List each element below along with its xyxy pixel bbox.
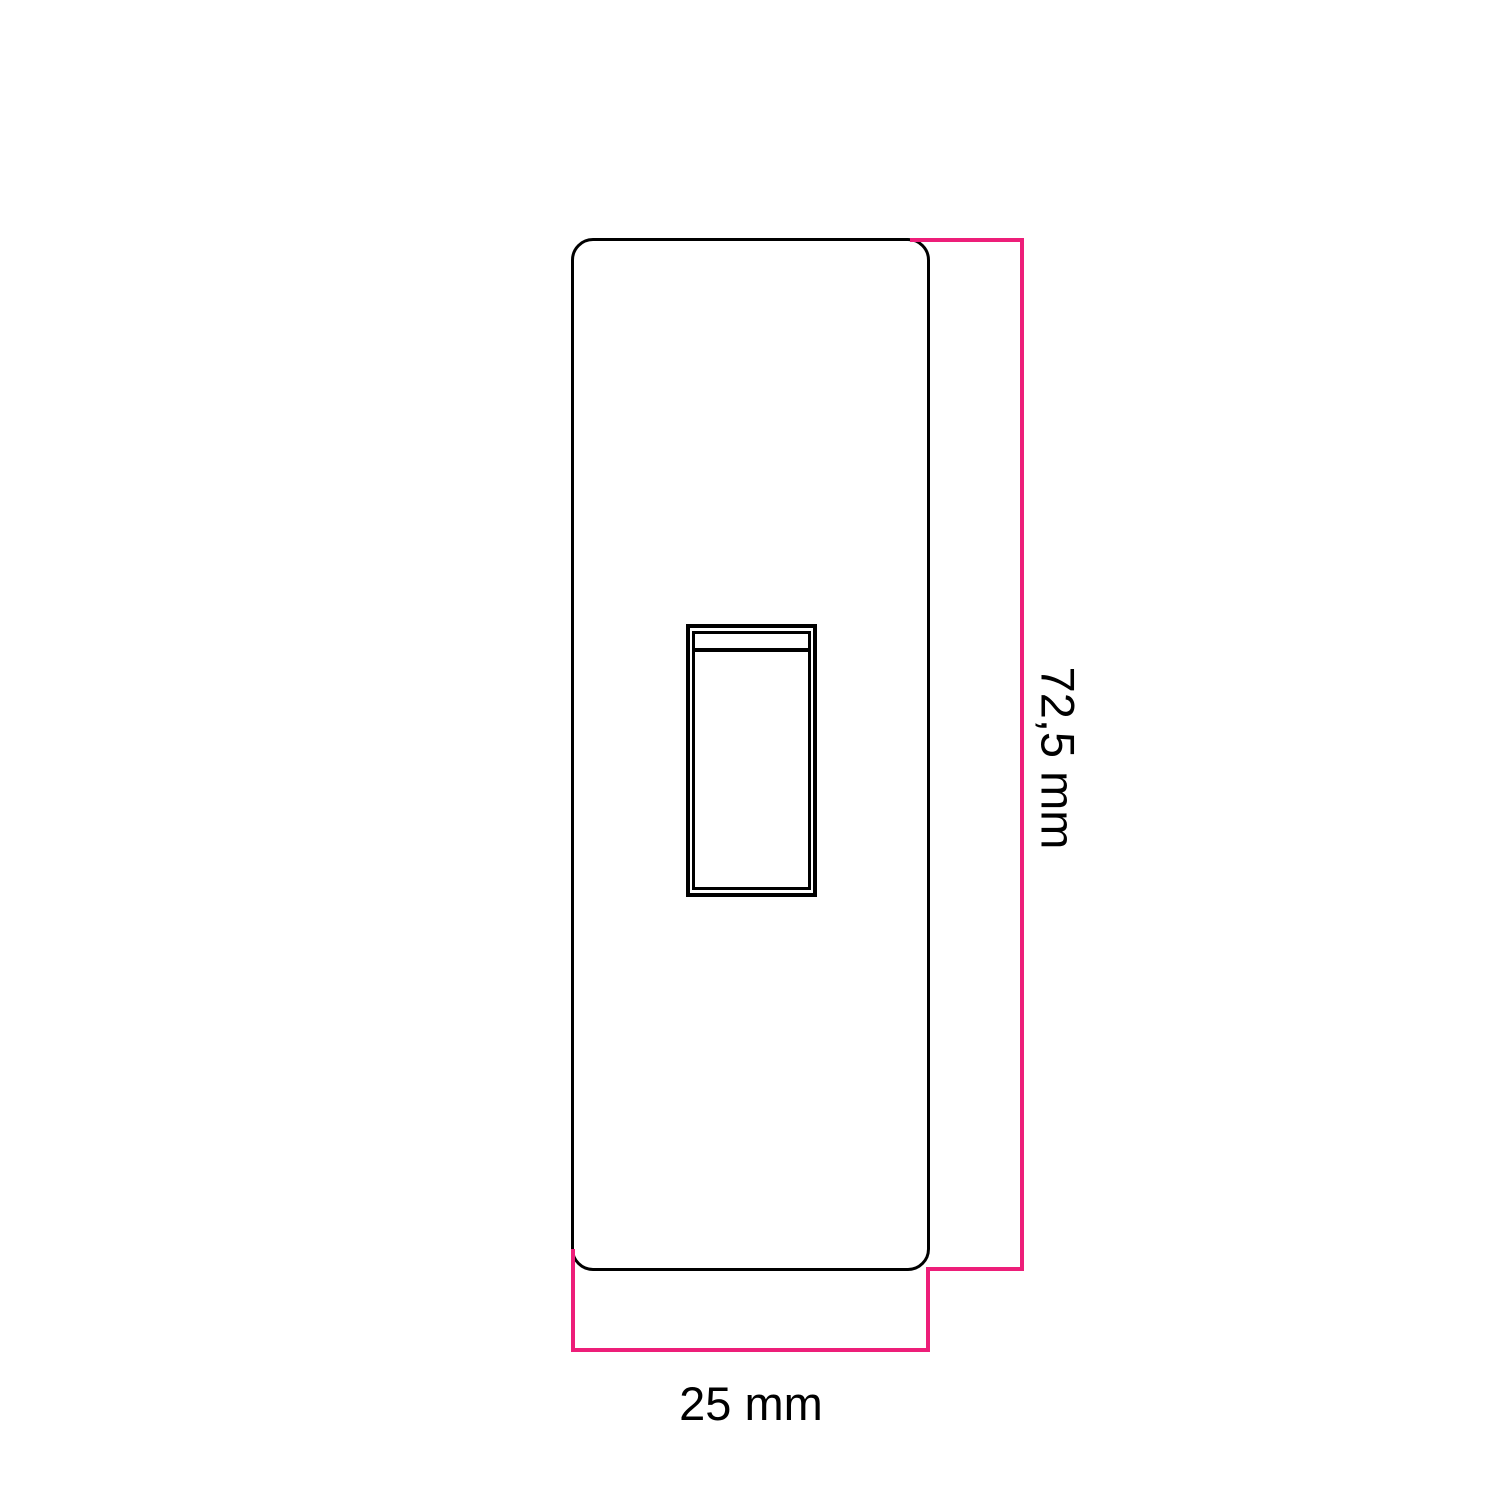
width-dim-extension-right <box>926 1267 930 1352</box>
width-dim-label: 25 mm <box>573 1380 929 1427</box>
width-dim-line <box>571 1348 930 1352</box>
height-dim-line <box>1020 238 1024 1271</box>
height-dim-extension-bottom <box>928 1267 1024 1271</box>
rocker-top-edge-line <box>694 648 809 652</box>
height-dim-label: 72,5 mm <box>1035 667 1082 850</box>
technical-drawing-canvas: 72,5 mm 25 mm <box>0 0 1500 1500</box>
height-dim-extension-top <box>910 238 1024 242</box>
width-dim-extension-left <box>571 1249 575 1352</box>
switch-rocker-rect <box>692 631 811 890</box>
